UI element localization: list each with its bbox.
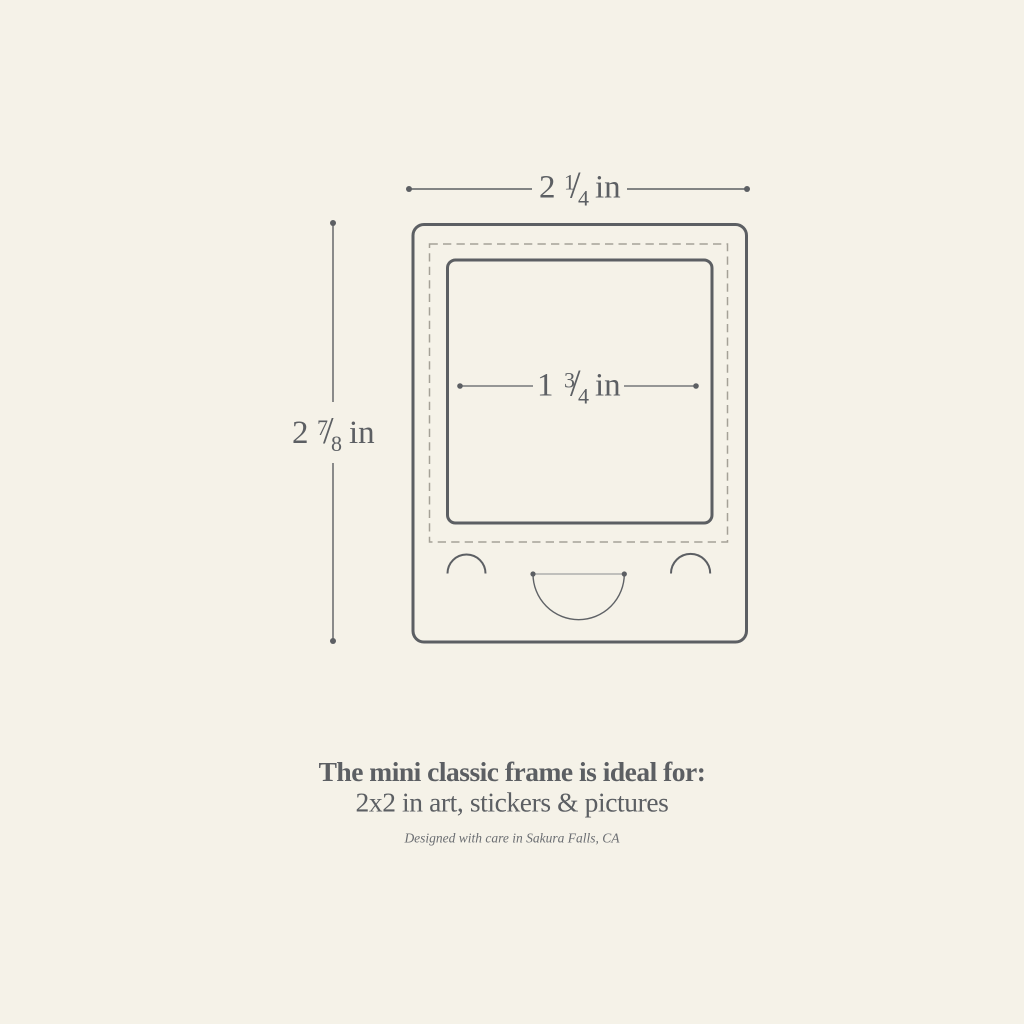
svg-text:in: in (595, 169, 621, 205)
svg-text:4: 4 (578, 384, 589, 409)
svg-text:2: 2 (292, 415, 309, 451)
svg-text:in: in (595, 368, 621, 404)
svg-text:in: in (349, 415, 375, 451)
svg-text:2: 2 (539, 169, 556, 205)
svg-text:1: 1 (537, 368, 554, 404)
svg-text:8: 8 (331, 431, 342, 456)
svg-text:4: 4 (578, 185, 589, 210)
svg-text:The mini classic frame is idea: The mini classic frame is ideal for: (319, 756, 706, 787)
svg-text:2x2 in art, stickers & picture: 2x2 in art, stickers & pictures (356, 787, 669, 818)
svg-text:Designed with care in Sakura F: Designed with care in Sakura Falls, CA (403, 831, 620, 846)
